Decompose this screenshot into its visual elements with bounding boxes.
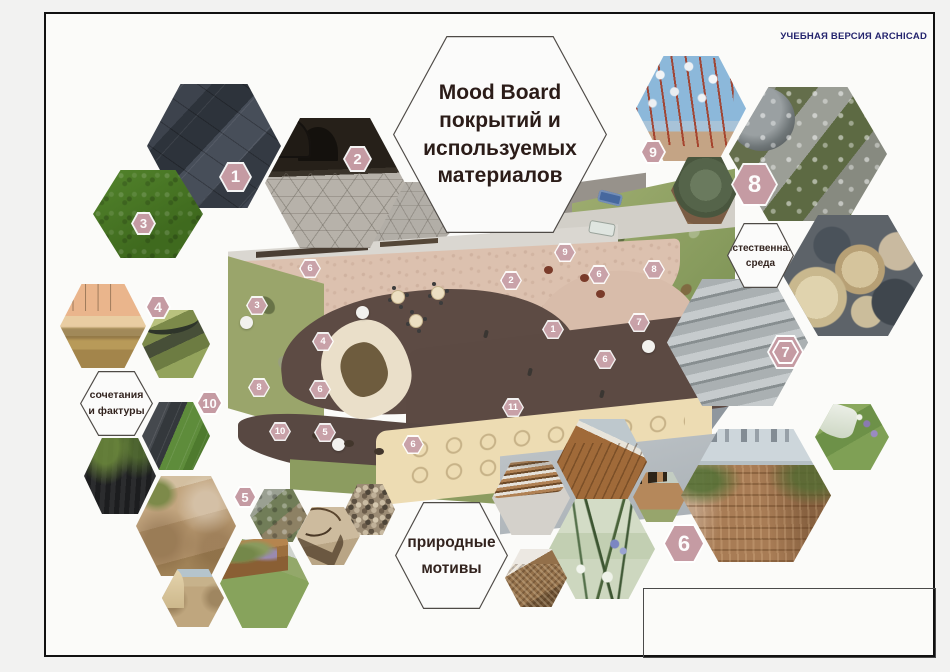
- label-line: мотивы: [421, 556, 481, 582]
- plan-marker-2: 2: [500, 271, 522, 290]
- label-line: и фактуры: [88, 404, 144, 420]
- plan-marker-9: 9: [554, 243, 576, 262]
- board-title-line: Mood Board: [439, 79, 561, 107]
- board-title-line: материалов: [437, 162, 562, 190]
- plan-marker-6: 6: [588, 265, 610, 284]
- plan-marker-6: 6: [594, 350, 616, 369]
- plan-marker-6: 6: [309, 380, 331, 399]
- plan-marker-6: 6: [299, 259, 321, 278]
- plan-marker-5: 5: [314, 423, 336, 442]
- plan-marker-7: 7: [628, 313, 650, 332]
- label-line: среда: [746, 256, 775, 271]
- board-title-line: покрытий и: [439, 107, 561, 135]
- plan-marker-8: 8: [248, 378, 270, 397]
- plan-marker-6: 6: [402, 435, 424, 454]
- label-line: сочетания: [90, 388, 144, 404]
- archicad-watermark: УЧЕБНАЯ ВЕРСИЯ ARCHICAD: [765, 31, 927, 42]
- plan-marker-1: 1: [542, 320, 564, 339]
- board-title-line: используемых: [423, 135, 577, 163]
- plan-marker-4: 4: [312, 332, 334, 351]
- label-line: естественная: [727, 241, 794, 256]
- plan-marker-3: 3: [246, 296, 268, 315]
- label-line: природные: [407, 530, 495, 556]
- plan-marker-8: 8: [643, 260, 665, 279]
- mood-board-sheet: УЧЕБНАЯ ВЕРСИЯ ARCHICAD: [0, 0, 950, 672]
- plan-marker-11: 11: [502, 398, 524, 417]
- plan-marker-10: 10: [269, 422, 291, 441]
